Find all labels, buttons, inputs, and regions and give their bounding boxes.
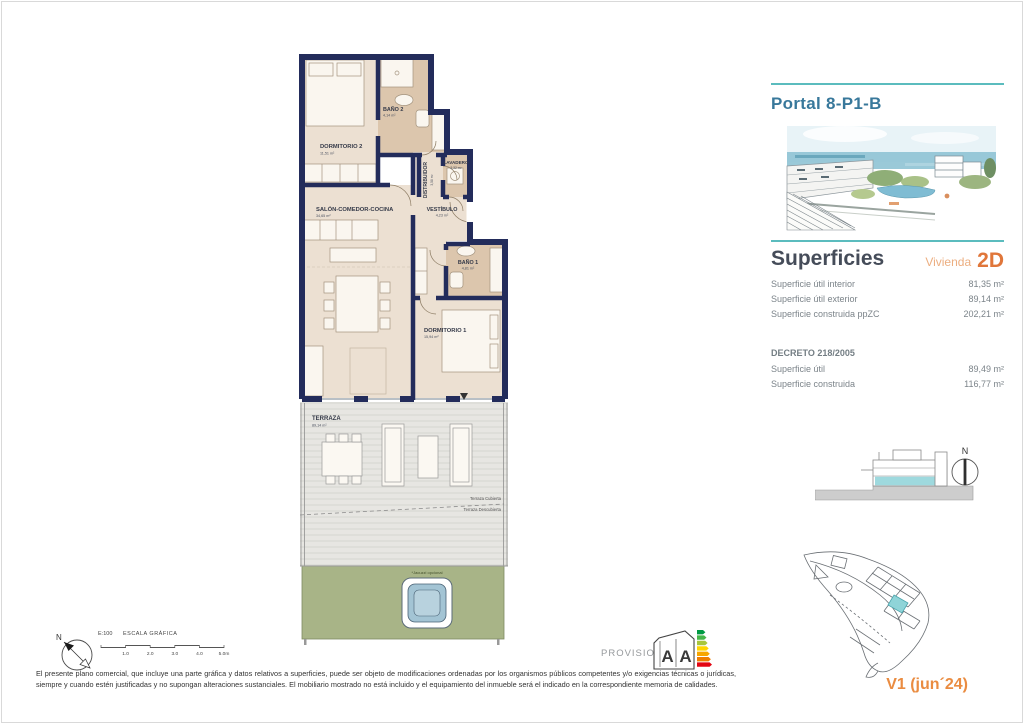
row-value: 89,49 m²: [968, 364, 1004, 374]
superficies-title: Superficies: [771, 247, 884, 271]
project-rendering: [785, 122, 998, 232]
floorplan-sheet: *Jacuzzi opcional Terraza Cubierta Terra…: [0, 0, 1024, 724]
room-label-vestibulo: VESTÍBULO: [427, 205, 458, 213]
section-north-compass: N: [952, 446, 978, 485]
vivienda-label: Vivienda: [925, 255, 971, 271]
energy-letter-consumo: A: [661, 647, 673, 666]
scale-tick: 1.0: [122, 651, 129, 657]
scale-tick: 3.0: [171, 651, 178, 657]
vivienda-code: 2D: [977, 250, 1004, 271]
superficies-row: Superficie construida ppZC 202,21 m²: [771, 309, 1004, 319]
room-area-dormitorio1: 15,94 m²: [424, 335, 439, 339]
building-section-diagram: N: [815, 438, 1010, 510]
superficies-row: Superficie útil interior 81,35 m²: [771, 279, 1004, 289]
site-key-plan: [790, 545, 970, 685]
row-label: Superficie construida: [771, 379, 855, 389]
room-area-dormitorio2: 11,51 m²: [320, 152, 335, 156]
legal-disclaimer: El presente plano comercial, que incluye…: [36, 669, 736, 691]
room-area-vestibulo: 4,23 m²: [436, 214, 449, 218]
terraza-cubierta-label: Terraza Cubierta: [470, 496, 502, 501]
room-label-bano2: BAÑO 2: [383, 106, 403, 113]
decreto-row: Superficie útil 89,49 m²: [771, 364, 1004, 374]
energy-letter-emisiones: A: [679, 647, 691, 666]
graphic-scale: E:100 ESCALA GRÁFICA 1.0 2.0 3.0 4.0 5.0…: [93, 626, 241, 658]
room-label-distribuidor: DISTRIBUIDOR: [423, 162, 429, 199]
decreto-row: Superficie construida 116,77 m²: [771, 379, 1004, 389]
jacuzzi: [402, 578, 452, 628]
superficies-row: Superficie útil exterior 89,14 m²: [771, 294, 1004, 304]
highlighted-floor: [875, 477, 945, 486]
jacuzzi-note: *Jacuzzi opcional: [412, 570, 443, 575]
energy-arrows: [697, 630, 712, 667]
plan-version: V1 (jun´24): [848, 676, 968, 694]
row-value: 116,77 m²: [964, 379, 1004, 389]
superficies-table: Superficie útil interior 81,35 m² Superf…: [771, 279, 1004, 324]
north-label: N: [962, 446, 969, 456]
highlighted-unit: [888, 595, 908, 613]
row-value: 81,35 m²: [968, 279, 1004, 289]
superficies-header: Superficies Vivienda 2D: [771, 247, 1004, 271]
scale-ratio: E:100: [98, 631, 112, 637]
room-label-dormitorio1: DORMITORIO 1: [424, 328, 467, 334]
portal-title: Portal 8-P1-B: [771, 94, 882, 114]
energy-rating-icon: A A: [651, 627, 715, 671]
room-area-distribuidor: 3,58 m²: [430, 174, 434, 186]
room-label-terraza: TERRAZA: [312, 416, 341, 422]
room-label-bano1: BAÑO 1: [458, 259, 478, 266]
room-area-bano2: 4,14 m²: [383, 114, 396, 118]
row-label: Superficie útil: [771, 364, 825, 374]
room-area-lavadero: 2,32 m²: [450, 166, 462, 170]
room-label-salon: SALÓN-COMEDOR-COCINA: [316, 205, 394, 213]
terraza-descubierta-label: Terraza Descubierta: [464, 507, 502, 512]
header-rule: [771, 83, 1004, 85]
scale-title: ESCALA GRÁFICA: [123, 630, 177, 637]
row-label: Superficie útil interior: [771, 279, 855, 289]
room-area-bano1: 4,81 m²: [462, 267, 475, 271]
decreto-block: DECRETO 218/2005 Superficie útil 89,49 m…: [771, 348, 1004, 394]
north-label: N: [56, 633, 62, 642]
room-area-terraza: 89,14 m²: [312, 424, 327, 428]
superficies-rule: [771, 240, 1004, 242]
room-label-lavadero: LAVADERO: [443, 160, 469, 165]
decreto-title: DECRETO 218/2005: [771, 348, 1004, 358]
row-label: Superficie útil exterior: [771, 294, 858, 304]
floor-plan: *Jacuzzi opcional Terraza Cubierta Terra…: [296, 52, 514, 674]
row-value: 202,21 m²: [963, 309, 1004, 319]
row-value: 89,14 m²: [968, 294, 1004, 304]
scale-tick: 2.0: [147, 651, 154, 657]
room-label-dormitorio2: DORMITORIO 2: [320, 144, 362, 150]
scale-tick: 5.0m: [219, 651, 230, 657]
room-area-salon: 34,65 m²: [316, 214, 331, 218]
row-label: Superficie construida ppZC: [771, 309, 880, 319]
scale-tick: 4.0: [196, 651, 203, 657]
